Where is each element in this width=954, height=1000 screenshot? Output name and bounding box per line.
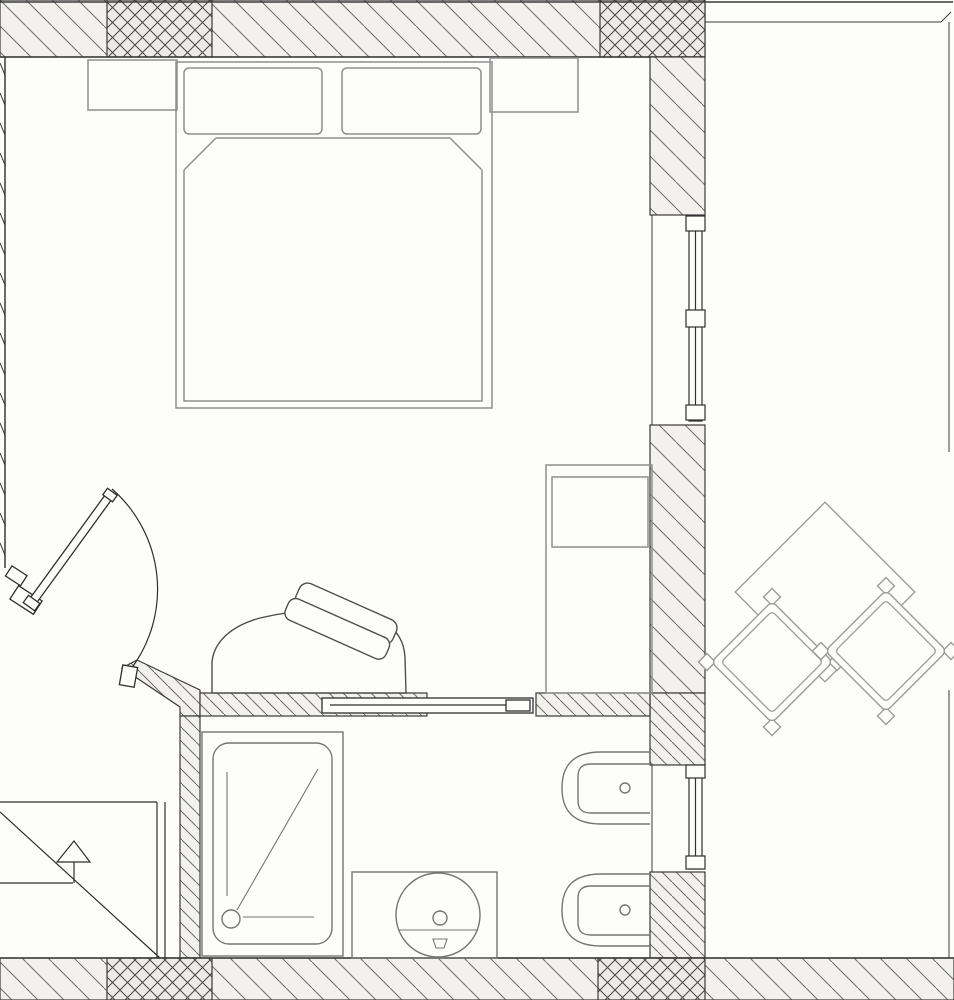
paper-background bbox=[0, 0, 954, 1000]
window-frame-block bbox=[686, 405, 705, 420]
bottom-wall bbox=[0, 958, 954, 1000]
door-stop-block bbox=[119, 665, 137, 687]
window-frame-block bbox=[686, 856, 705, 869]
floor-plan-page bbox=[0, 0, 954, 1000]
bathroom-left-wall bbox=[180, 716, 200, 958]
window-upper bbox=[686, 216, 705, 421]
door-handle-block bbox=[506, 700, 530, 711]
column-cross-hatch bbox=[107, 958, 212, 1000]
sliding-door bbox=[322, 698, 533, 713]
column-cross-hatch bbox=[598, 958, 705, 1000]
window-bathroom bbox=[686, 765, 705, 869]
window-frame-block bbox=[686, 310, 705, 327]
column-cross-hatch bbox=[107, 0, 212, 57]
floor-plan-canvas bbox=[0, 0, 954, 1000]
column-cross-hatch bbox=[600, 0, 705, 57]
window-frame-block bbox=[686, 216, 705, 231]
window-frame-block bbox=[686, 765, 705, 778]
bathroom-top-wall bbox=[536, 693, 650, 716]
